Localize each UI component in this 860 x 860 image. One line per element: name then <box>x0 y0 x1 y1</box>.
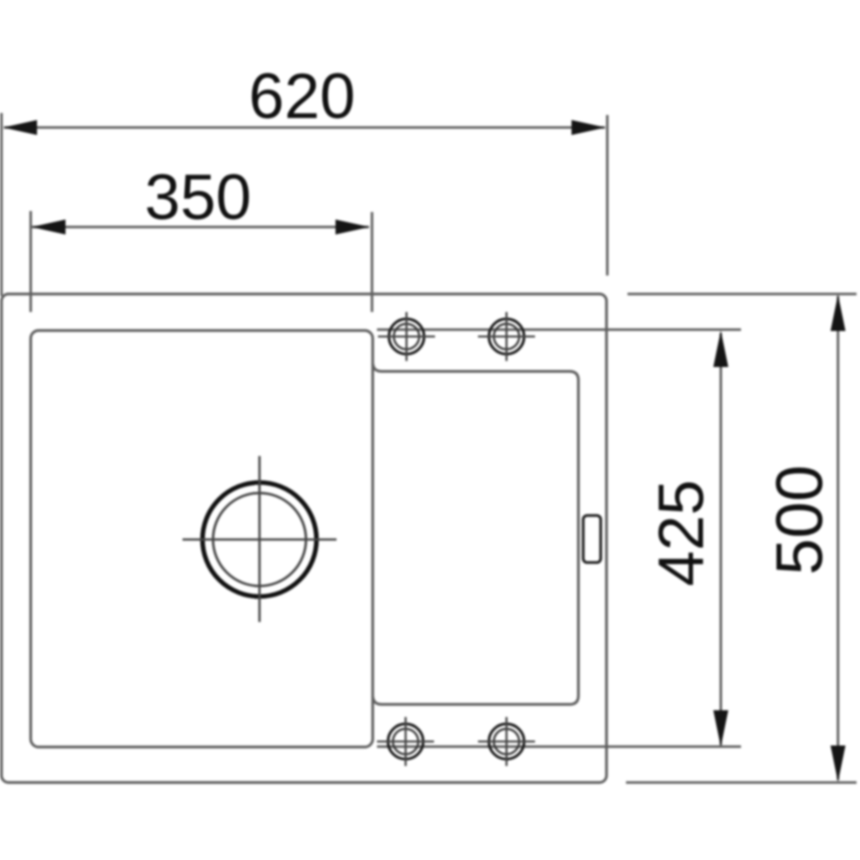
svg-text:500: 500 <box>762 465 836 575</box>
svg-text:620: 620 <box>249 60 356 132</box>
svg-text:425: 425 <box>645 480 717 587</box>
svg-text:350: 350 <box>145 161 252 233</box>
